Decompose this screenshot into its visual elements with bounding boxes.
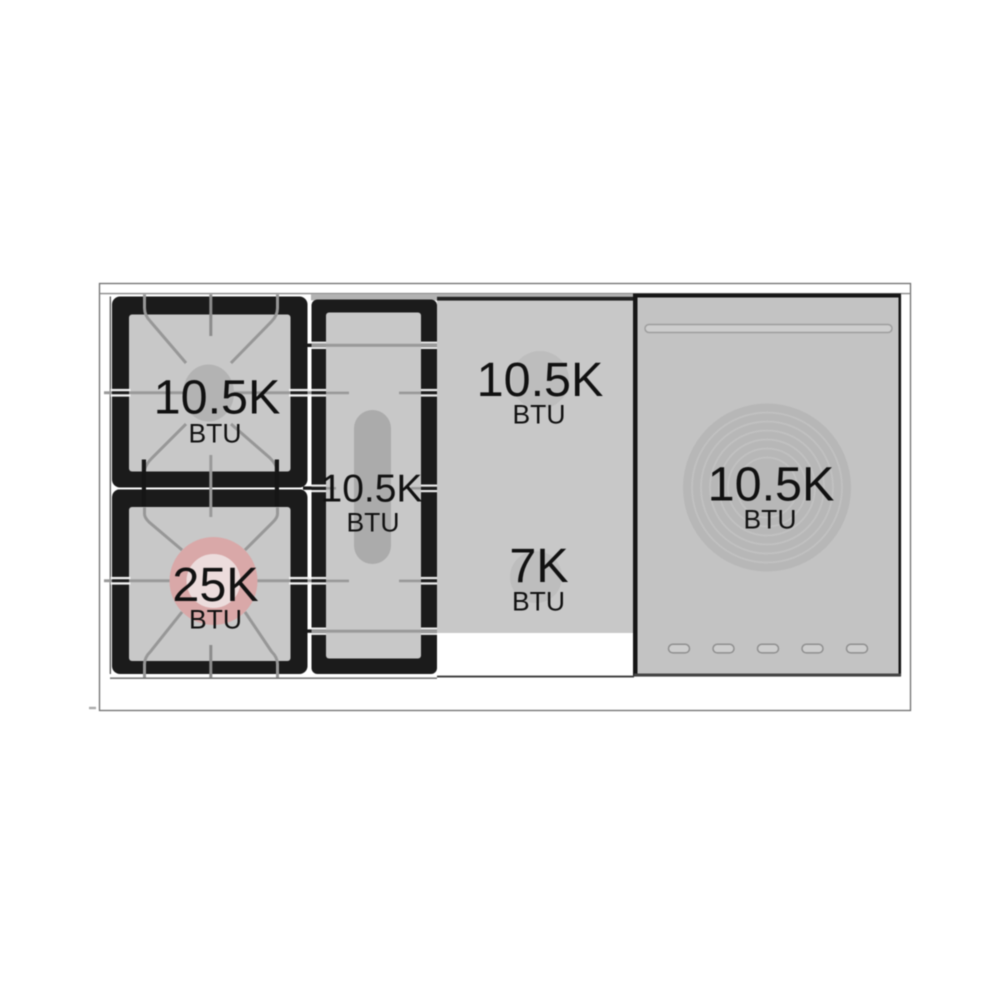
- svg-text:BTU: BTU: [189, 605, 242, 635]
- svg-text:10.5K: 10.5K: [708, 458, 835, 512]
- svg-text:10.5K: 10.5K: [321, 468, 423, 511]
- svg-text:BTU: BTU: [744, 505, 797, 535]
- svg-text:BTU: BTU: [513, 400, 566, 430]
- svg-text:BTU: BTU: [347, 508, 400, 538]
- svg-text:10.5K: 10.5K: [154, 371, 281, 425]
- svg-text:BTU: BTU: [512, 587, 565, 617]
- svg-text:7K: 7K: [509, 539, 568, 593]
- svg-text:BTU: BTU: [189, 419, 242, 449]
